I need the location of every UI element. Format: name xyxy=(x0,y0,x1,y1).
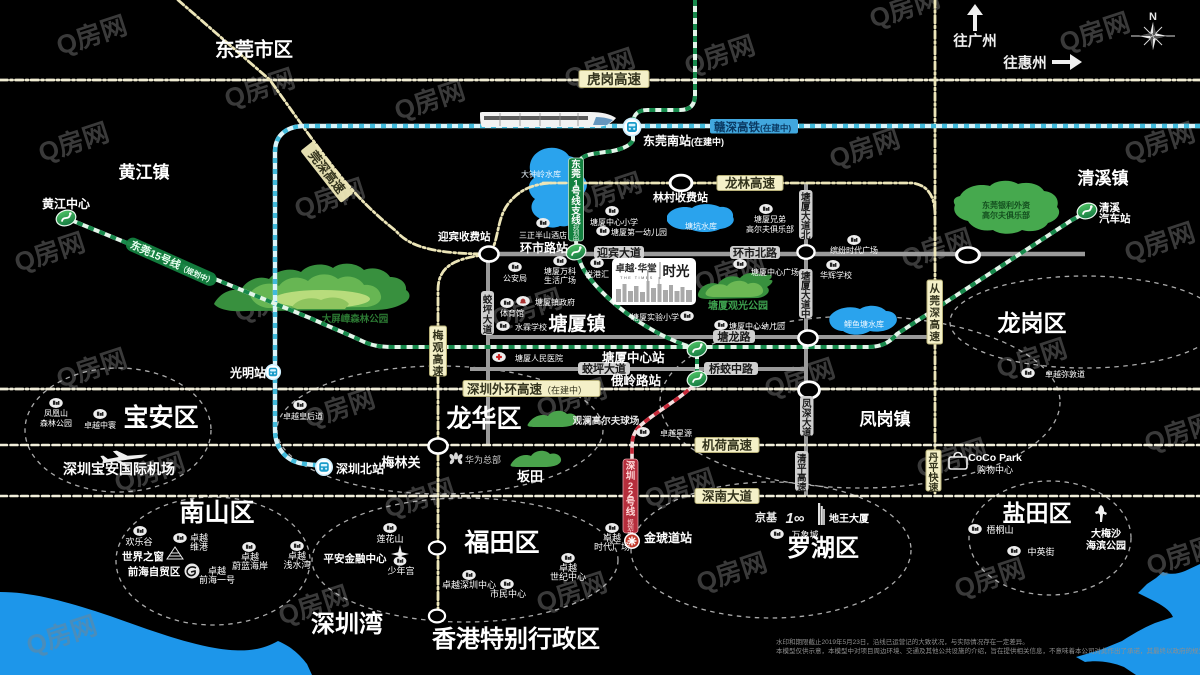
svg-text:卓越·华堂: 卓越·华堂 xyxy=(615,263,657,275)
svg-text:塘坑水库: 塘坑水库 xyxy=(685,221,717,231)
svg-text:往惠州: 往惠州 xyxy=(1003,54,1047,72)
svg-text:华为总部: 华为总部 xyxy=(465,454,501,465)
svg-text:黄江镇: 黄江镇 xyxy=(119,162,170,182)
svg-text:龙岗区: 龙岗区 xyxy=(998,310,1067,336)
svg-text:购物中心: 购物中心 xyxy=(977,464,1013,475)
svg-text:福田区: 福田区 xyxy=(463,529,539,557)
svg-text:万象城: 万象城 xyxy=(791,529,818,540)
svg-text:浅水湾: 浅水湾 xyxy=(283,559,310,570)
svg-text:本模型仅供示意，本模型中对项目周边环境、交通及其他公共设施的: 本模型仅供示意，本模型中对项目周边环境、交通及其他公共设施的介绍，旨在提供相关信… xyxy=(776,646,1200,655)
svg-text:塘厦镇: 塘厦镇 xyxy=(548,312,605,335)
svg-text:THE TIMES: THE TIMES xyxy=(620,276,654,280)
svg-text:观澜高尔夫球场: 观澜高尔夫球场 xyxy=(572,415,640,427)
svg-text:塘厦观光公园: 塘厦观光公园 xyxy=(708,299,768,312)
svg-text:从莞深高速: 从莞深高速 xyxy=(928,283,940,343)
svg-text:水霖学校: 水霖学校 xyxy=(515,322,547,332)
svg-text:凤凰山: 凤凰山 xyxy=(44,408,68,418)
svg-text:俄岭路站: 俄岭路站 xyxy=(610,373,662,388)
svg-text:水印和期限截止2019年5月23日，沿线已运营记的大致状况，: 水印和期限截止2019年5月23日，沿线已运营记的大致状况，与实际情况存在一定差… xyxy=(776,637,1029,646)
svg-text:塘厦中心幼儿园: 塘厦中心幼儿园 xyxy=(729,321,785,331)
svg-text:林村收费站: 林村收费站 xyxy=(653,190,708,204)
svg-text:盐田区: 盐田区 xyxy=(1003,500,1072,526)
svg-text:时光: 时光 xyxy=(663,263,691,279)
svg-text:莲花山: 莲花山 xyxy=(376,533,403,544)
svg-text:中英街: 中英街 xyxy=(1027,546,1054,557)
svg-text:卓越皇后道: 卓越皇后道 xyxy=(283,411,323,421)
svg-text:桥蛟中路: 桥蛟中路 xyxy=(709,362,754,376)
svg-text:少年宫: 少年宫 xyxy=(387,565,414,576)
svg-text:京基: 京基 xyxy=(755,510,778,524)
svg-text:大屏嶂森林公园: 大屏嶂森林公园 xyxy=(322,313,389,325)
svg-text:虎岗高速: 虎岗高速 xyxy=(587,71,641,87)
svg-text:龙林高速: 龙林高速 xyxy=(724,176,776,191)
svg-text:坂田: 坂田 xyxy=(517,469,543,484)
svg-text:时代广场: 时代广场 xyxy=(594,541,630,552)
svg-text:1∞: 1∞ xyxy=(785,510,804,527)
svg-text:大钟岭水库: 大钟岭水库 xyxy=(521,169,561,179)
svg-text:塘厦万科: 塘厦万科 xyxy=(544,266,576,276)
svg-text:规划中: 规划中 xyxy=(573,223,580,244)
svg-text:黄江中心: 黄江中心 xyxy=(42,196,90,211)
svg-text:机荷高速: 机荷高速 xyxy=(702,438,753,453)
svg-text:市民中心: 市民中心 xyxy=(490,588,526,599)
svg-text:塘厦实验小学: 塘厦实验小学 xyxy=(631,312,679,322)
svg-text:凤深大道: 凤深大道 xyxy=(802,399,812,439)
svg-text:龙华区: 龙华区 xyxy=(446,404,521,433)
svg-text:世纪中心: 世纪中心 xyxy=(550,571,586,582)
svg-text:海滨公园: 海滨公园 xyxy=(1086,539,1126,552)
svg-text:东莞银利外资: 东莞银利外资 xyxy=(982,200,1030,210)
svg-text:丹平快速: 丹平快速 xyxy=(928,452,940,494)
svg-text:体育馆: 体育馆 xyxy=(500,308,524,318)
svg-text:迎宾收费站: 迎宾收费站 xyxy=(438,230,491,243)
svg-text:塘厦镇政府: 塘厦镇政府 xyxy=(535,297,575,307)
svg-text:前海一号: 前海一号 xyxy=(199,574,235,585)
svg-text:迎宾大道: 迎宾大道 xyxy=(597,246,641,260)
svg-text:高尔夫俱乐部: 高尔夫俱乐部 xyxy=(982,210,1030,220)
svg-text:三正半山酒店: 三正半山酒店 xyxy=(519,230,567,240)
svg-text:凤岗镇: 凤岗镇 xyxy=(860,409,911,429)
svg-text:梅林关: 梅林关 xyxy=(381,455,420,470)
svg-text:环市路站: 环市路站 xyxy=(520,240,568,255)
svg-text:深圳北站: 深圳北站 xyxy=(336,461,384,476)
svg-text:南山区: 南山区 xyxy=(179,499,254,527)
svg-text:塘厦第一幼儿园: 塘厦第一幼儿园 xyxy=(611,227,667,237)
svg-text:卓越中寰: 卓越中寰 xyxy=(84,420,116,430)
svg-text:公安局: 公安局 xyxy=(503,273,527,283)
svg-text:深圳湾: 深圳湾 xyxy=(311,610,383,638)
svg-text:华辉学校: 华辉学校 xyxy=(820,270,852,280)
svg-text:地王大厦: 地王大厦 xyxy=(829,512,870,525)
svg-text:世界之窗: 世界之窗 xyxy=(122,550,164,563)
svg-text:悦港汇: 悦港汇 xyxy=(585,269,609,279)
svg-text:卓越星源: 卓越星源 xyxy=(660,428,692,438)
svg-text:CoCo Park: CoCo Park xyxy=(968,452,1022,464)
svg-text:香港特别行政区: 香港特别行政区 xyxy=(432,625,600,653)
svg-text:N: N xyxy=(1149,11,1157,23)
svg-text:塘厦中心站: 塘厦中心站 xyxy=(602,350,665,365)
svg-text:东莞1号线支线: 东莞1号线支线 xyxy=(570,159,581,227)
svg-text:生活广场: 生活广场 xyxy=(544,275,576,285)
svg-text:欢乐谷: 欢乐谷 xyxy=(125,536,152,547)
svg-text:环市北路: 环市北路 xyxy=(733,246,778,260)
svg-text:梧桐山: 梧桐山 xyxy=(986,524,1013,535)
svg-text:清平高速: 清平高速 xyxy=(797,453,807,494)
svg-text:蛟坪大道: 蛟坪大道 xyxy=(483,294,493,336)
svg-text:往广州: 往广州 xyxy=(953,32,997,50)
svg-text:塘厦大道北: 塘厦大道北 xyxy=(801,192,811,242)
svg-text:塘厦中心小学: 塘厦中心小学 xyxy=(590,217,638,227)
svg-text:汽车站: 汽车站 xyxy=(1099,212,1131,225)
svg-text:高尔夫俱乐部: 高尔夫俱乐部 xyxy=(746,224,794,234)
svg-text:塘龙路: 塘龙路 xyxy=(718,330,752,344)
svg-text:蔚蓝海岸: 蔚蓝海岸 xyxy=(232,560,268,571)
svg-text:卓越深圳中心: 卓越深圳中心 xyxy=(442,579,496,590)
svg-text:清溪镇: 清溪镇 xyxy=(1078,168,1129,188)
svg-text:东莞市区: 东莞市区 xyxy=(215,38,293,61)
svg-text:前海自贸区: 前海自贸区 xyxy=(128,565,181,578)
svg-text:森林公园: 森林公园 xyxy=(40,418,72,428)
svg-text:梅观高速: 梅观高速 xyxy=(433,328,444,378)
svg-text:光明站: 光明站 xyxy=(229,365,266,380)
svg-text:塘厦中心广场: 塘厦中心广场 xyxy=(751,267,799,277)
svg-text:塘厦兄弟: 塘厦兄弟 xyxy=(754,214,786,224)
svg-text:深南大道: 深南大道 xyxy=(702,489,753,504)
svg-text:塘厦人民医院: 塘厦人民医院 xyxy=(515,353,563,363)
svg-text:维港: 维港 xyxy=(190,541,208,552)
svg-text:金琥道站: 金琥道站 xyxy=(643,530,692,545)
svg-text:宝安区: 宝安区 xyxy=(123,403,198,432)
svg-text:鲤鱼塘水库: 鲤鱼塘水库 xyxy=(844,319,884,329)
svg-text:大梅沙: 大梅沙 xyxy=(1091,527,1121,540)
svg-text:赣深高铁(在建中): 赣深高铁(在建中) xyxy=(714,120,791,134)
svg-text:卓越弥敦道: 卓越弥敦道 xyxy=(1045,369,1085,379)
svg-text:缤纷时代广场: 缤纷时代广场 xyxy=(830,245,878,255)
svg-text:平安金融中心: 平安金融中心 xyxy=(324,552,387,565)
svg-text:塘厦大道中: 塘厦大道中 xyxy=(801,271,811,321)
svg-text:深圳宝安国际机场: 深圳宝安国际机场 xyxy=(63,461,175,477)
